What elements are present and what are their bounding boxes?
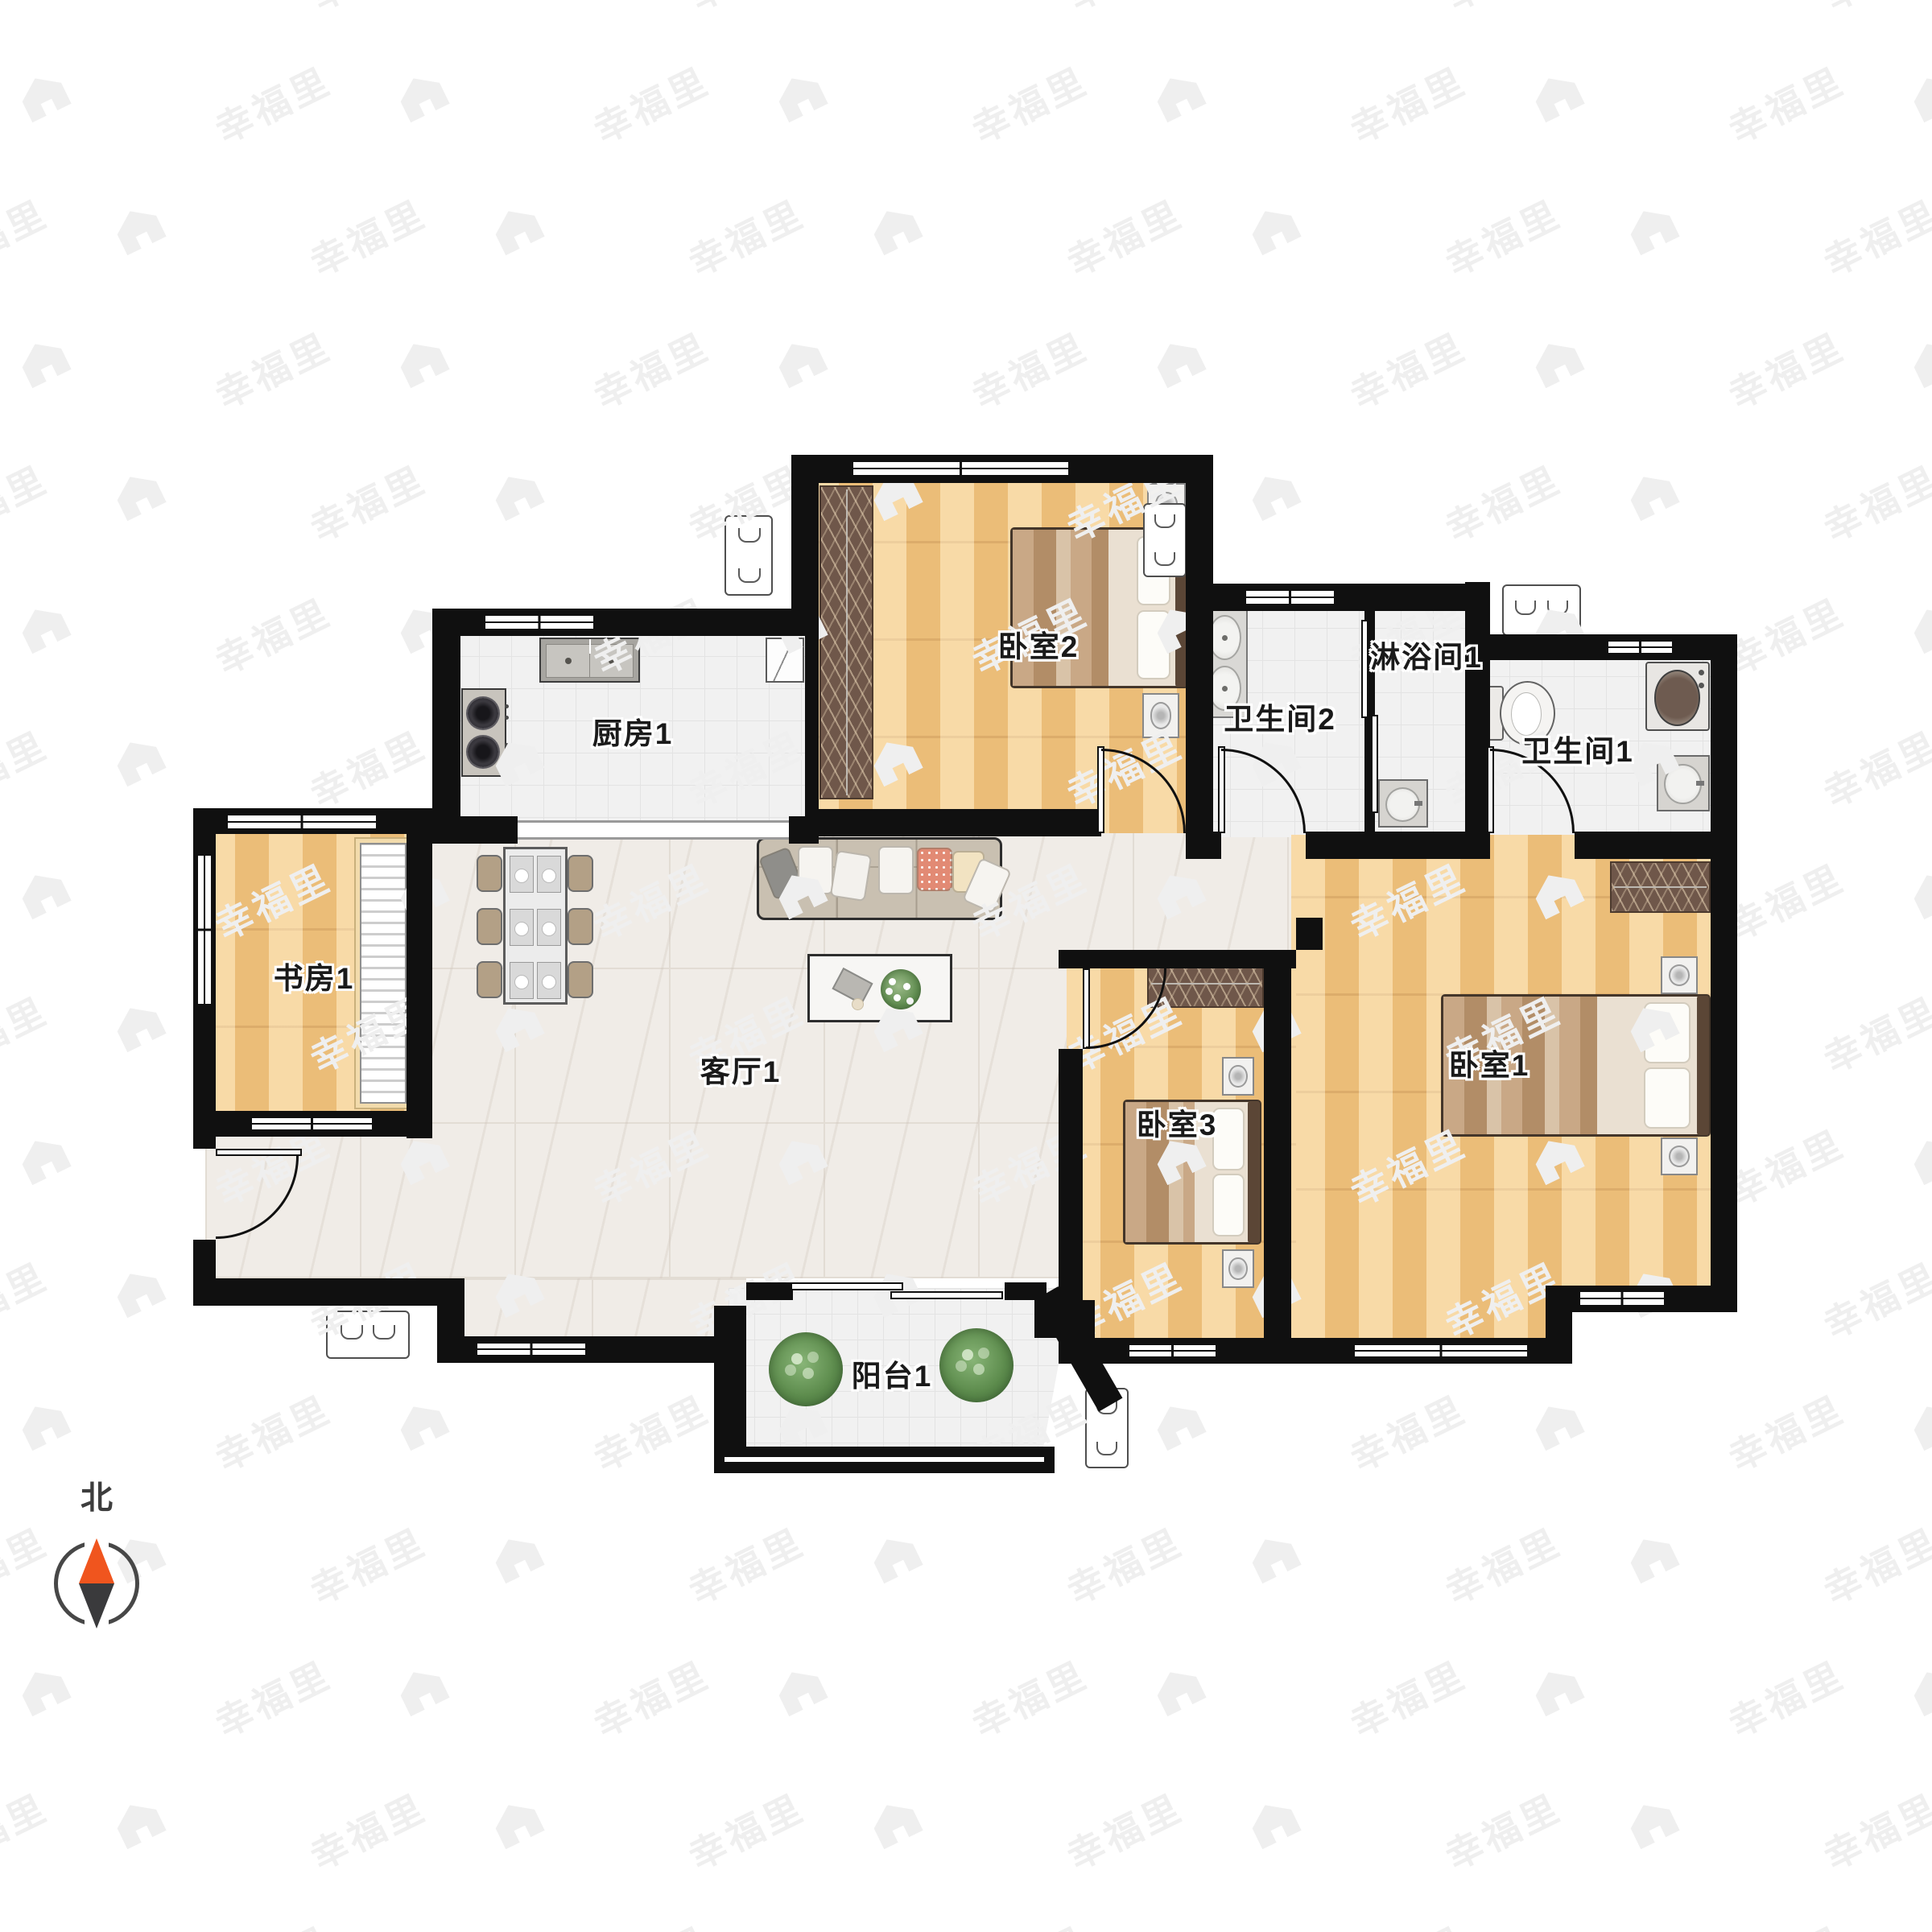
wall — [193, 1278, 464, 1306]
north-compass: 北 — [54, 1472, 142, 1657]
watermark-house-icon — [1150, 1663, 1207, 1717]
watermark-house-icon — [1245, 1796, 1302, 1850]
watermark-house-icon — [394, 1663, 450, 1717]
watermark-text: 幸福里 — [0, 982, 56, 1084]
watermark-house-icon — [1529, 69, 1585, 123]
wall — [1306, 832, 1490, 859]
wall — [1296, 918, 1323, 950]
window — [196, 853, 213, 1006]
shower-room-sink — [1378, 779, 1428, 828]
watermark-text: 幸福里 — [205, 52, 339, 154]
dining-chair — [477, 961, 502, 998]
watermark-text: 幸福里 — [1719, 1646, 1852, 1748]
kitchen-sink — [539, 638, 640, 683]
watermark-text: 幸福里 — [1719, 849, 1852, 951]
watermark-house-icon — [15, 601, 72, 654]
watermark-text: 幸福里 — [0, 1779, 56, 1880]
ac-unit-icon — [326, 1311, 410, 1359]
wall — [1711, 634, 1737, 1312]
watermark-text: 幸福里 — [1814, 1779, 1932, 1880]
watermark-text: 幸福里 — [300, 185, 434, 287]
watermark-text: 幸福里 — [1057, 1513, 1191, 1615]
wardrobe-bedroom1 — [1610, 861, 1711, 913]
wall — [1059, 950, 1296, 968]
watermark-text: 幸福里 — [584, 1912, 717, 1932]
watermark-text: 幸福里 — [1814, 0, 1932, 21]
wall — [1186, 832, 1221, 859]
watermark-text: 幸福里 — [962, 1646, 1096, 1748]
watermark-text: 幸福里 — [0, 716, 56, 818]
watermark-text: 幸福里 — [679, 1779, 812, 1880]
wall — [407, 808, 432, 1138]
wardrobe-bedroom2 — [819, 485, 873, 799]
watermark-house-icon — [772, 1663, 828, 1717]
watermark-text: 幸福里 — [1435, 0, 1569, 21]
watermark-text: 幸福里 — [584, 52, 717, 154]
watermark-text: 幸福里 — [1340, 52, 1474, 154]
dining-chair — [477, 908, 502, 945]
nightstand — [1222, 1057, 1254, 1096]
watermark-text: 幸福里 — [679, 1513, 812, 1615]
watermark-house-icon — [15, 1397, 72, 1451]
watermark-house-icon — [15, 69, 72, 123]
watermark-text: 幸福里 — [0, 451, 56, 552]
watermark-house-icon — [110, 1265, 167, 1319]
bedroom1-floor-ext — [1291, 1286, 1546, 1342]
watermark-text: 幸福里 — [679, 185, 812, 287]
watermark-text: 幸福里 — [584, 318, 717, 419]
watermark-text: 幸福里 — [962, 318, 1096, 419]
label-bathroom2: 卫生间2 — [1224, 695, 1336, 738]
watermark-text: 幸福里 — [205, 1912, 339, 1932]
watermark-text: 幸福里 — [1719, 52, 1852, 154]
watermark-house-icon — [394, 1929, 450, 1932]
ac-unit-icon — [1143, 503, 1187, 577]
watermark-house-icon — [867, 1530, 923, 1584]
window — [475, 1341, 588, 1357]
label-study: 书房1 — [274, 954, 355, 997]
watermark-house-icon — [489, 202, 545, 256]
dining-chair — [568, 961, 593, 998]
ac-unit-icon — [1502, 584, 1581, 636]
watermark-house-icon — [1907, 1132, 1932, 1186]
watermark-house-icon — [15, 1663, 72, 1717]
watermark-house-icon — [867, 202, 923, 256]
living-room-floor-ext — [437, 1278, 746, 1336]
watermark-house-icon — [489, 1796, 545, 1850]
watermark-house-icon — [110, 1796, 167, 1850]
window — [851, 460, 1071, 477]
plant-icon — [939, 1328, 1013, 1402]
watermark-text: 幸福里 — [205, 584, 339, 685]
watermark-text: 幸福里 — [1719, 318, 1852, 419]
watermark-house-icon — [15, 1132, 72, 1186]
label-shower1: 淋浴间1 — [1370, 633, 1483, 676]
kitchen-opening-threshold — [518, 820, 789, 840]
watermark-house-icon — [772, 69, 828, 123]
watermark-text: 幸福里 — [679, 0, 812, 21]
wall — [432, 609, 460, 844]
watermark-house-icon — [394, 1397, 450, 1451]
wall — [1034, 1300, 1095, 1338]
sliding-door-panel — [1371, 715, 1378, 813]
wall — [433, 816, 518, 844]
window — [225, 813, 378, 831]
watermark-text: 幸福里 — [205, 318, 339, 419]
watermark-house-icon — [1529, 1929, 1585, 1932]
flower-vase-icon — [881, 969, 921, 1009]
wall — [805, 809, 1101, 836]
watermark-house-icon — [1907, 601, 1932, 654]
watermark-text: 幸福里 — [1814, 716, 1932, 818]
watermark-text: 幸福里 — [300, 1513, 434, 1615]
watermark-text: 幸福里 — [1435, 185, 1569, 287]
watermark-house-icon — [1624, 1530, 1680, 1584]
watermark-text: 幸福里 — [1340, 1381, 1474, 1482]
sofa-icon — [757, 837, 1002, 920]
watermark-text: 幸福里 — [1719, 1912, 1852, 1932]
watermark-text: 幸福里 — [1719, 1115, 1852, 1216]
watermark-house-icon — [772, 335, 828, 389]
watermark-house-icon — [1245, 468, 1302, 522]
watermark-house-icon — [1245, 1530, 1302, 1584]
wall — [1484, 634, 1711, 660]
watermark-text: 幸福里 — [205, 1646, 339, 1748]
label-bathroom1: 卫生间1 — [1521, 727, 1634, 770]
watermark-house-icon — [1907, 335, 1932, 389]
wall — [1191, 584, 1484, 611]
window — [250, 1116, 374, 1132]
sliding-door-panel — [1361, 620, 1368, 718]
watermark-house-icon — [772, 1929, 828, 1932]
dining-chair — [568, 908, 593, 945]
label-living: 客厅1 — [700, 1047, 782, 1091]
label-bedroom1: 卧室1 — [1449, 1041, 1530, 1084]
label-bedroom3: 卧室3 — [1137, 1100, 1218, 1144]
watermark-house-icon — [1907, 1663, 1932, 1717]
watermark-house-icon — [867, 1796, 923, 1850]
entry-door-leaf — [216, 1149, 302, 1156]
watermark-text: 幸福里 — [0, 0, 56, 21]
watermark-text: 幸福里 — [1814, 1513, 1932, 1615]
sliding-door-panel — [890, 1291, 1003, 1299]
watermark-text: 幸福里 — [962, 1912, 1096, 1932]
watermark-house-icon — [1150, 69, 1207, 123]
nightstand — [1142, 693, 1179, 738]
watermark-text: 幸福里 — [300, 451, 434, 552]
watermark-text: 幸福里 — [962, 52, 1096, 154]
watermark-house-icon — [1907, 1397, 1932, 1451]
watermark-text: 幸福里 — [1057, 185, 1191, 287]
watermark-house-icon — [489, 1530, 545, 1584]
watermark-house-icon — [1150, 1929, 1207, 1932]
corner-cabinet-icon — [766, 638, 804, 683]
watermark-house-icon — [394, 69, 450, 123]
watermark-text: 幸福里 — [1719, 584, 1852, 685]
nightstand — [1222, 1249, 1254, 1288]
watermark-text: 幸福里 — [1340, 1646, 1474, 1748]
watermark-house-icon — [1245, 202, 1302, 256]
sliding-door-panel — [791, 1282, 903, 1290]
plant-icon — [769, 1332, 843, 1406]
dining-chair — [568, 855, 593, 892]
watermark-text: 幸福里 — [0, 1513, 56, 1615]
label-bedroom2: 卧室2 — [998, 622, 1080, 666]
label-balcony: 阳台1 — [852, 1352, 933, 1395]
wall — [1264, 950, 1291, 1338]
watermark-house-icon — [1907, 69, 1932, 123]
nightstand — [1661, 1137, 1698, 1175]
watermark-house-icon — [110, 733, 167, 787]
window — [1578, 1290, 1666, 1307]
wall — [1186, 455, 1213, 859]
washing-machine-icon — [1645, 662, 1710, 731]
watermark-text: 幸福里 — [0, 185, 56, 287]
watermark-text: 幸福里 — [1814, 185, 1932, 287]
compass-north-label: 北 — [80, 1472, 113, 1518]
wall — [1575, 832, 1711, 859]
watermark-house-icon — [1529, 335, 1585, 389]
tray-icon — [832, 968, 873, 1005]
watermark-house-icon — [1907, 866, 1932, 920]
watermark-text: 幸福里 — [1435, 1779, 1569, 1880]
watermark-house-icon — [394, 335, 450, 389]
watermark-house-icon — [15, 335, 72, 389]
watermark-house-icon — [110, 202, 167, 256]
watermark-text: 幸福里 — [584, 1381, 717, 1482]
window — [1352, 1343, 1529, 1359]
stove-icon — [461, 688, 506, 777]
watermark-text: 幸福里 — [1814, 1248, 1932, 1349]
watermark-text: 幸福里 — [300, 0, 434, 21]
watermark-house-icon — [1529, 1663, 1585, 1717]
watermark-house-icon — [15, 1929, 72, 1932]
coffee-table — [807, 954, 952, 1022]
watermark-house-icon — [1150, 1397, 1207, 1451]
floor-plan: 幸福里幸福里幸福里幸福里幸福里幸福里幸福里幸福里幸福里幸福里幸福里幸福里幸福里幸… — [0, 0, 1932, 1932]
window — [1127, 1343, 1218, 1359]
watermark-house-icon — [15, 866, 72, 920]
watermark-text: 幸福里 — [584, 1646, 717, 1748]
watermark-text: 幸福里 — [0, 1248, 56, 1349]
watermark-text: 幸福里 — [1340, 318, 1474, 419]
watermark-text: 幸福里 — [1814, 982, 1932, 1084]
window — [483, 613, 596, 631]
watermark-text: 幸福里 — [300, 716, 434, 818]
watermark-text: 幸福里 — [300, 1779, 434, 1880]
watermark-house-icon — [110, 468, 167, 522]
dining-table — [503, 847, 568, 1005]
watermark-house-icon — [489, 468, 545, 522]
watermark-house-icon — [1624, 202, 1680, 256]
wall — [1005, 1282, 1046, 1300]
bathroom1-sink — [1657, 755, 1710, 811]
window — [1606, 639, 1674, 655]
watermark-text: 幸福里 — [1435, 451, 1569, 552]
watermark-house-icon — [1624, 468, 1680, 522]
dining-chair — [477, 855, 502, 892]
nightstand — [1661, 956, 1698, 994]
wall — [193, 1240, 216, 1306]
watermark-house-icon — [1529, 1397, 1585, 1451]
watermark-text: 幸福里 — [1057, 1779, 1191, 1880]
ac-unit-icon — [724, 515, 773, 596]
watermark-house-icon — [110, 999, 167, 1053]
watermark-text: 幸福里 — [1435, 1513, 1569, 1615]
watermark-text: 幸福里 — [1814, 451, 1932, 552]
wall — [746, 1282, 793, 1300]
watermark-text: 幸福里 — [1719, 1381, 1852, 1482]
label-kitchen: 厨房1 — [592, 709, 674, 753]
watermark-text: 幸福里 — [1057, 0, 1191, 21]
watermark-house-icon — [1907, 1929, 1932, 1932]
watermark-text: 幸福里 — [205, 1381, 339, 1482]
window — [1244, 588, 1336, 606]
watermark-house-icon — [1150, 335, 1207, 389]
watermark-text: 幸福里 — [1340, 1912, 1474, 1932]
watermark-house-icon — [1624, 1796, 1680, 1850]
wall — [805, 636, 819, 809]
bookshelf-icon — [360, 843, 407, 1104]
